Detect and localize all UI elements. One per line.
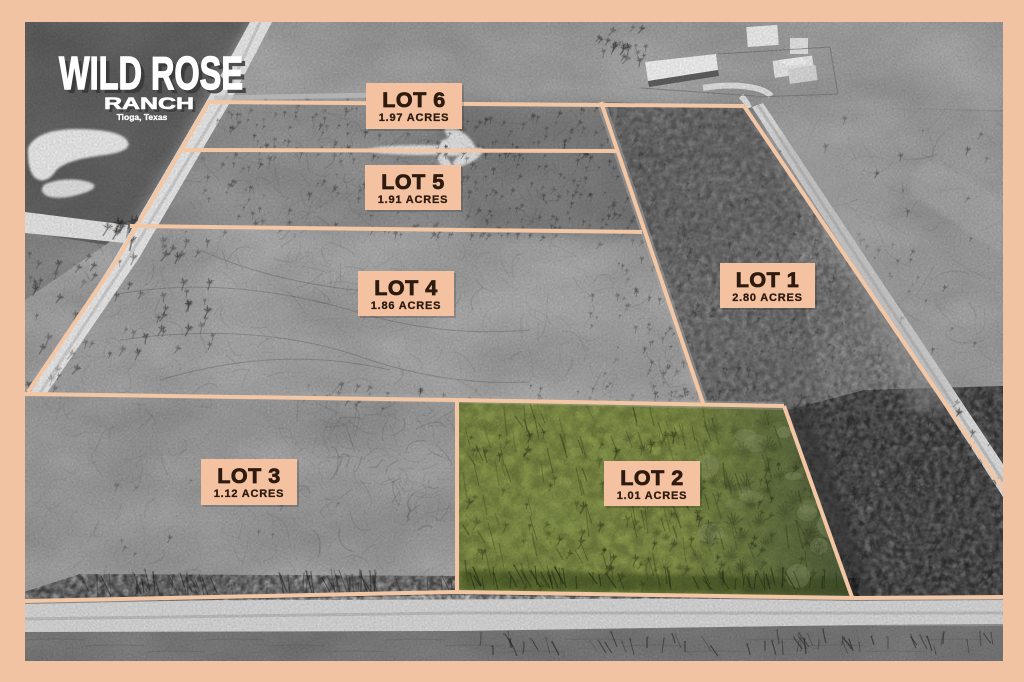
svg-text:LOT 6: LOT 6	[382, 88, 445, 112]
svg-text:1.97 ACRES: 1.97 ACRES	[379, 112, 450, 124]
svg-text:LOT 2: LOT 2	[620, 466, 683, 490]
svg-text:2.80 ACRES: 2.80 ACRES	[732, 292, 803, 304]
svg-text:Tioga, Texas: Tioga, Texas	[117, 112, 168, 122]
svg-text:LOT 4: LOT 4	[374, 276, 437, 300]
svg-text:LOT 1: LOT 1	[736, 268, 799, 292]
svg-text:LOT 5: LOT 5	[381, 170, 444, 194]
svg-text:1.86 ACRES: 1.86 ACRES	[371, 300, 442, 312]
svg-text:LOT 3: LOT 3	[217, 464, 280, 488]
svg-text:1.12 ACRES: 1.12 ACRES	[214, 488, 285, 500]
svg-text:WILD ROSE: WILD ROSE	[59, 47, 243, 99]
svg-text:RANCH: RANCH	[104, 95, 194, 113]
svg-text:1.01 ACRES: 1.01 ACRES	[617, 490, 688, 502]
svg-text:1.91 ACRES: 1.91 ACRES	[378, 194, 449, 206]
